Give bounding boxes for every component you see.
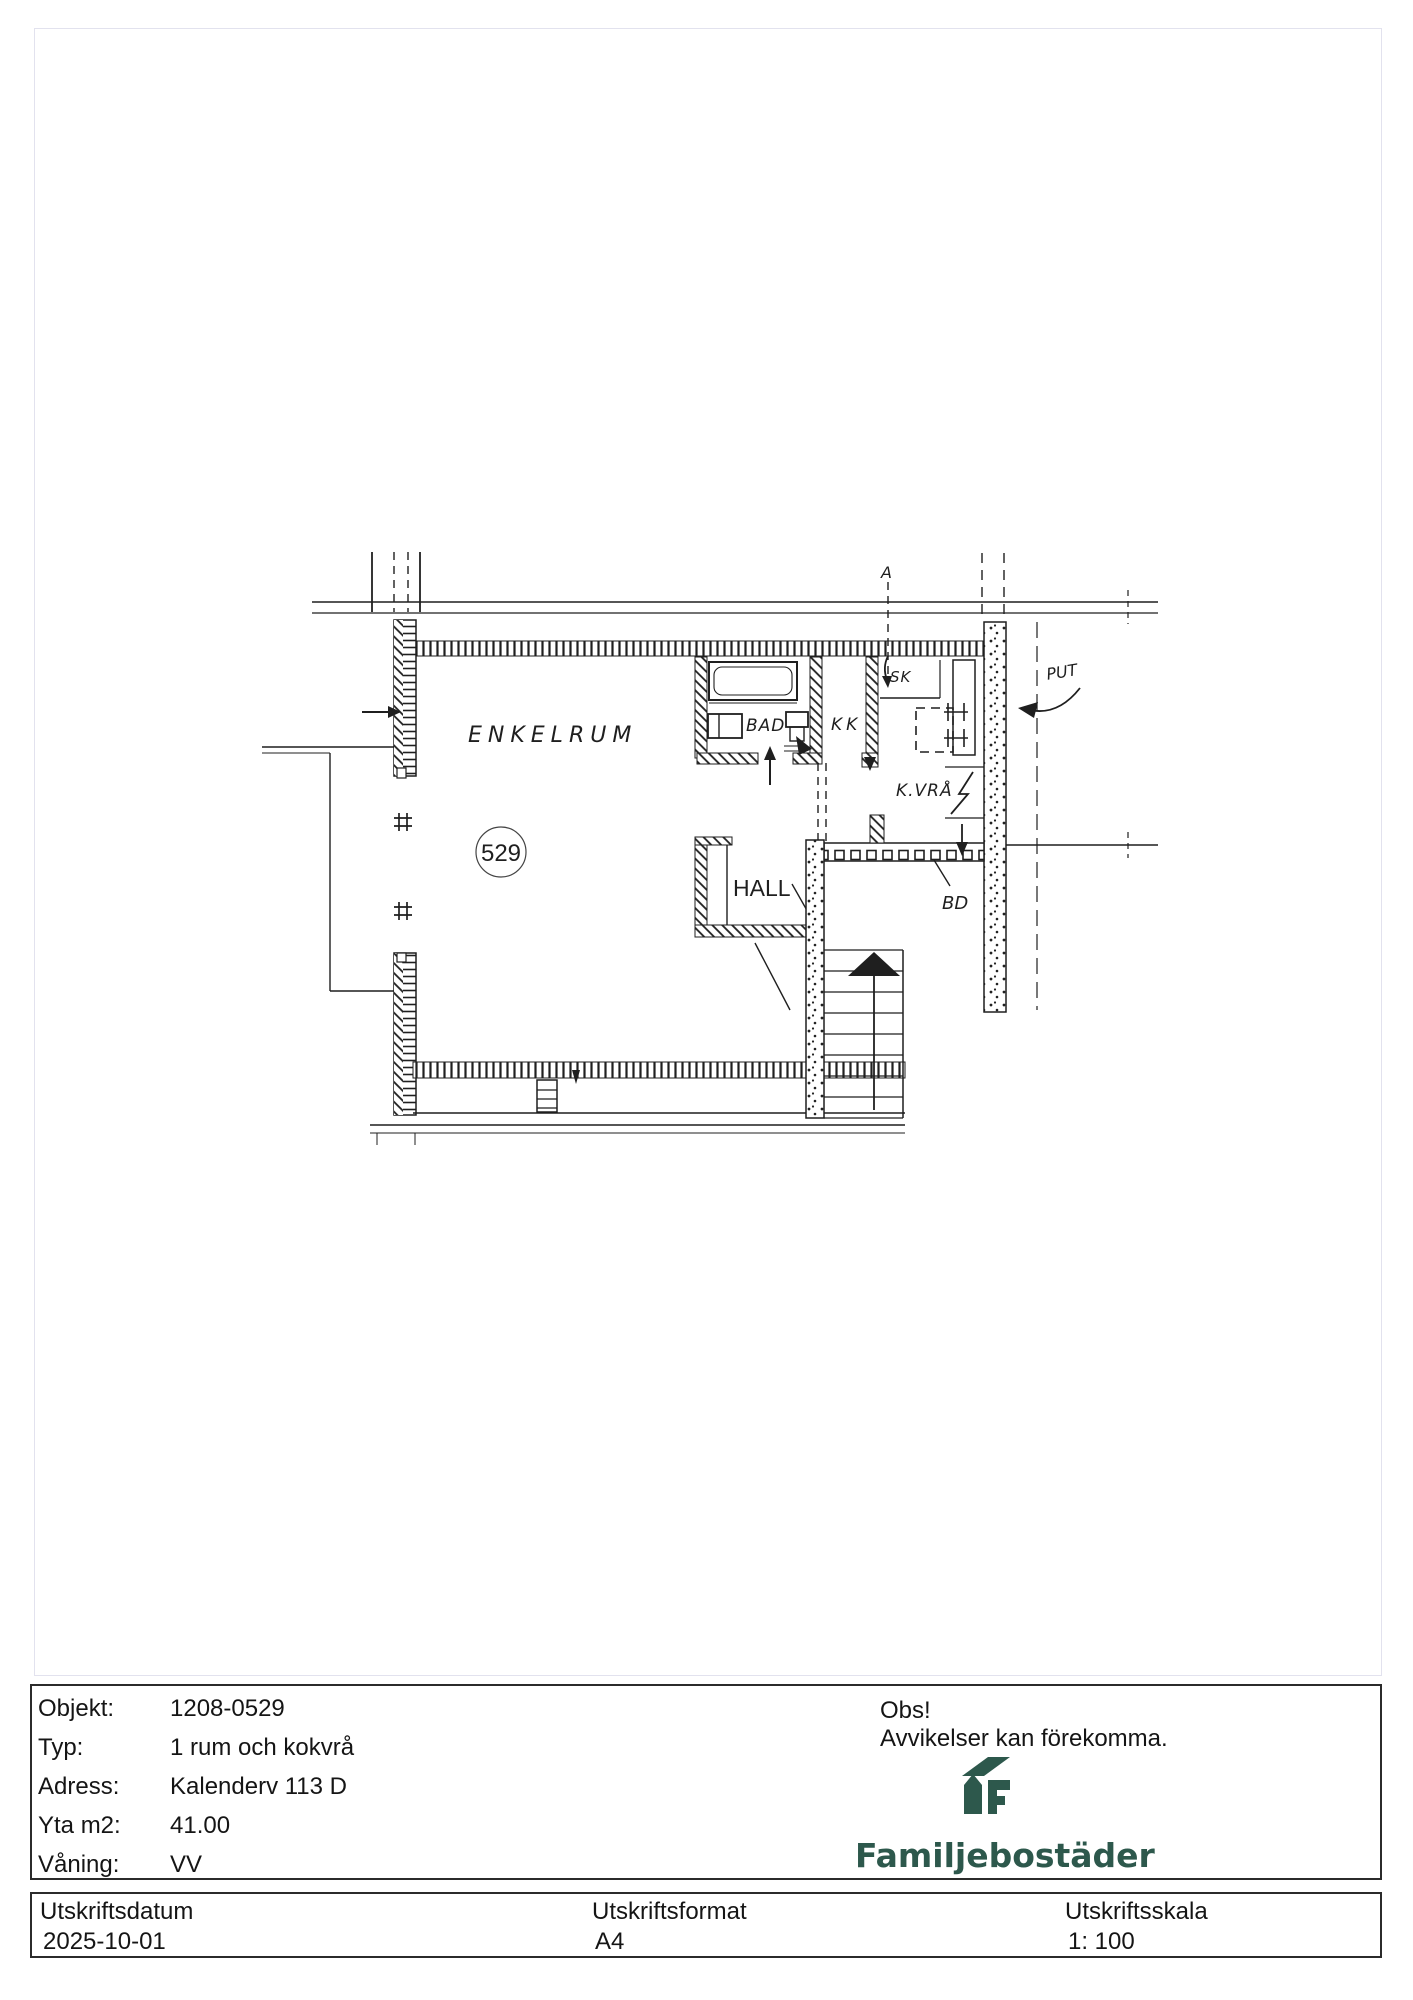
notice-title: Obs! bbox=[880, 1697, 931, 1725]
section-mark-label: A bbox=[880, 563, 892, 582]
info-value-yta: 41.00 bbox=[170, 1812, 230, 1840]
apartment-number-label: 529 bbox=[481, 840, 521, 867]
familjebostader-logo-icon bbox=[958, 1752, 1012, 1816]
notice-text: Avvikelser kan förekomma. bbox=[880, 1725, 1168, 1753]
footer-label-utskriftsskala: Utskriftsskala bbox=[1065, 1898, 1208, 1926]
info-value-vaning: VV bbox=[170, 1851, 202, 1879]
footer-label-utskriftsdatum: Utskriftsdatum bbox=[40, 1898, 193, 1926]
info-label-vaning: Våning: bbox=[38, 1851, 119, 1879]
closet-label: SK bbox=[890, 668, 912, 686]
footer-label-utskriftsformat: Utskriftsformat bbox=[592, 1898, 747, 1926]
kitchen-label: KK bbox=[831, 715, 861, 735]
put-label: PUT bbox=[1045, 660, 1080, 684]
info-label-objekt: Objekt: bbox=[38, 1695, 114, 1723]
cooking-nook-label: K.VRÅ bbox=[896, 779, 953, 801]
info-value-objekt: 1208-0529 bbox=[170, 1695, 285, 1723]
footer-value-utskriftsskala: 1: 100 bbox=[1068, 1928, 1135, 1956]
info-label-adress: Adress: bbox=[38, 1773, 119, 1801]
info-value-adress: Kalenderv 113 D bbox=[170, 1773, 347, 1801]
footer-value-utskriftsformat: A4 bbox=[595, 1928, 624, 1956]
info-value-typ: 1 rum och kokvrå bbox=[170, 1734, 354, 1762]
footer-value-utskriftsdatum: 2025-10-01 bbox=[43, 1928, 166, 1956]
info-label-typ: Typ: bbox=[38, 1734, 83, 1762]
bath-label: BAD bbox=[746, 716, 785, 736]
room-label: ENKELRUM bbox=[468, 723, 637, 748]
hall-label: HALL bbox=[733, 875, 791, 901]
bd-label: BD bbox=[942, 893, 968, 914]
plan-walls bbox=[262, 552, 1158, 1145]
print-page: ENKELRUM 529 BAD KK SK K.VRÅ HALL BD PUT… bbox=[0, 0, 1413, 2000]
info-label-yta: Yta m2: bbox=[38, 1812, 121, 1840]
brand-name: Familjebostäder bbox=[855, 1836, 1115, 1875]
